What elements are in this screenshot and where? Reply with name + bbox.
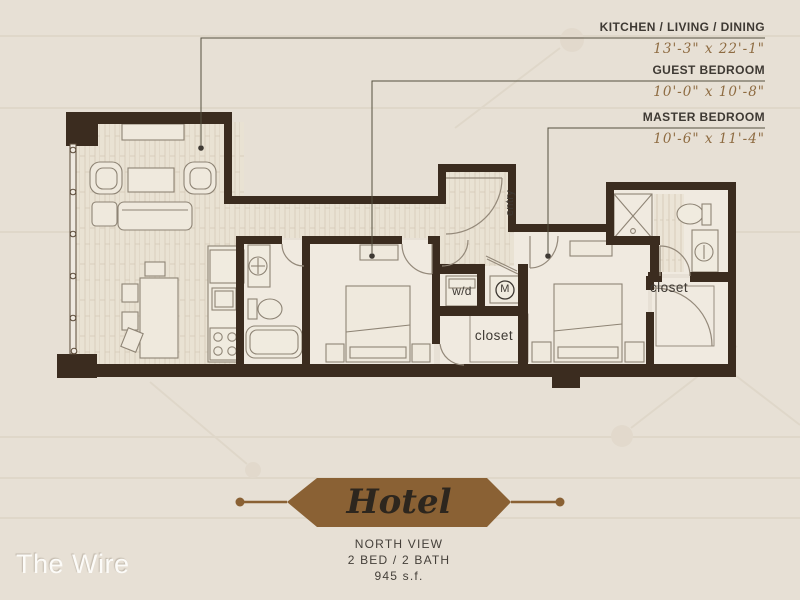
callout-master-bedroom: MASTER BEDROOM: [643, 110, 765, 124]
unit-name-title: Hotel: [299, 482, 499, 522]
building-watermark: The Wire: [16, 549, 130, 580]
callout-kitchen-living-dining: KITCHEN / LIVING / DINING: [600, 20, 765, 34]
unit-config-label: 2 BED / 2 BATH: [289, 553, 509, 567]
unit-area-label: 945 s.f.: [289, 569, 509, 583]
entry-label: entry: [494, 187, 526, 219]
callout-master-bedroom-dims: 10'-6" x 11'-4": [653, 131, 765, 147]
master-closet-label: closet: [637, 280, 701, 295]
callout-guest-bedroom-dims: 10'-0" x 10'-8": [653, 84, 765, 100]
unit-view-label: NORTH VIEW: [289, 537, 509, 551]
mechanical-label: M: [493, 283, 517, 295]
window-wall: [70, 144, 77, 354]
washer-dryer-label: w/d: [444, 284, 480, 298]
guest-closet-label: closet: [462, 328, 526, 343]
callout-kitchen-living-dining-dims: 13'-3" x 22'-1": [653, 41, 765, 57]
callout-guest-bedroom: GUEST BEDROOM: [652, 63, 765, 77]
floorplan-page: KITCHEN / LIVING / DINING 13'-3" x 22'-1…: [0, 0, 800, 600]
